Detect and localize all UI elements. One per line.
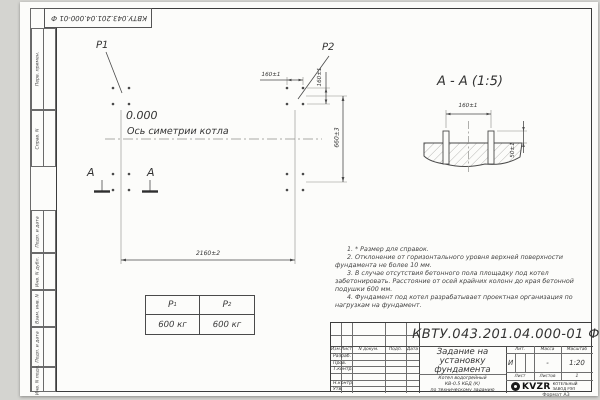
p2-subscript: 2 bbox=[228, 302, 232, 308]
load-table-header-p1: P1 bbox=[146, 296, 200, 315]
col-header-izm: Изм. bbox=[331, 346, 341, 353]
anchor-bolt-right bbox=[488, 131, 494, 164]
sig-row-tkontr: Т.контр. bbox=[331, 366, 352, 373]
p2-leader bbox=[298, 56, 329, 99]
section-letter-left: А bbox=[87, 166, 95, 179]
p2-label: P2 bbox=[322, 42, 334, 53]
company-logo: KVZR КОТЕЛЬНЫЙ ЗАВОД РЭП bbox=[511, 382, 578, 392]
load-table-value-p2: 600 кг bbox=[200, 315, 254, 334]
scale-value: 1:20 bbox=[561, 353, 593, 372]
product-line-3: по техническому заданию bbox=[419, 387, 506, 393]
dim-width-label: 2160±2 bbox=[183, 250, 233, 257]
elevation-label: 0.000 bbox=[126, 109, 158, 122]
col-header-ndokum: N докум. bbox=[352, 346, 385, 353]
concrete-block bbox=[424, 143, 522, 167]
symmetry-axis-label: Ось симетрии котла bbox=[127, 126, 229, 137]
p1-label: P1 bbox=[96, 40, 108, 51]
lit-value: И bbox=[506, 353, 515, 372]
sheets-label: Листов bbox=[534, 372, 561, 380]
dim-height-label: 660±3 bbox=[334, 122, 341, 154]
section-dim-protrusion-label: 50±1 bbox=[510, 134, 516, 166]
note-2: 2. Отклонение от горизонтального уровня … bbox=[335, 254, 580, 270]
title-block-line bbox=[331, 373, 419, 374]
scale-label: Масштаб bbox=[561, 346, 593, 353]
col-header-list: Лист bbox=[341, 346, 352, 353]
dim-bolt-horizontal-label: 160±1 bbox=[255, 72, 287, 78]
col-header-data: Дата bbox=[406, 346, 419, 353]
sig-row-utv: Утв. bbox=[331, 386, 352, 393]
doc-title-line-3: фундамента bbox=[419, 365, 506, 374]
note-4: 4. Фундамент под котел разрабатывает про… bbox=[335, 294, 580, 310]
dim-bolt-vertical-label: 160±1 bbox=[317, 61, 323, 93]
drawing-sheet: Перв. примен. Справ. N Подп. и дата Инв.… bbox=[0, 0, 600, 400]
section-cut-marks bbox=[94, 180, 158, 192]
load-table: P1 P2 600 кг 600 кг bbox=[145, 295, 255, 335]
logo-text: KVZR bbox=[522, 382, 551, 392]
lit-label: Лит. bbox=[506, 346, 534, 353]
title-block-line bbox=[525, 353, 526, 372]
note-1: 1. * Размер для справок. bbox=[335, 246, 580, 254]
title-block-line bbox=[406, 323, 407, 393]
note-3: 3. В случае отсутствия бетонного пола пл… bbox=[335, 270, 580, 294]
mass-value: - bbox=[534, 353, 561, 372]
p1-leader bbox=[106, 52, 122, 93]
title-block-line bbox=[515, 353, 516, 372]
title-block: КВТУ.043.201.04.000-01 Ф Изм. Лист N док… bbox=[330, 322, 592, 392]
title-block-line bbox=[331, 335, 419, 336]
mass-label: Масса bbox=[534, 346, 561, 353]
notes-block: 1. * Размер для справок. 2. Отклонение о… bbox=[335, 246, 580, 310]
title-block-line bbox=[385, 323, 386, 393]
p1-subscript: 1 bbox=[173, 302, 177, 308]
col-header-podp: Подп. bbox=[385, 346, 406, 353]
sheets-value: 1 bbox=[561, 372, 593, 380]
logo-sub-line2: ЗАВОД РЭП bbox=[553, 386, 576, 391]
sig-row-razrab: Разраб. bbox=[331, 353, 352, 360]
anchor-bolt-left bbox=[443, 131, 449, 164]
sheet-label: Лист bbox=[506, 372, 534, 380]
sig-row-nkontr: Н.контр. bbox=[331, 380, 352, 387]
section-title: А - А (1:5) bbox=[415, 74, 525, 89]
load-table-header-p2: P2 bbox=[200, 296, 254, 315]
title-block-designation: КВТУ.043.201.04.000-01 Ф bbox=[421, 324, 591, 345]
section-dim-spacing-label: 160±1 bbox=[448, 103, 488, 109]
gear-icon bbox=[511, 382, 520, 391]
load-table-value-p1: 600 кг bbox=[146, 315, 200, 334]
title-block-line bbox=[506, 380, 593, 381]
sig-row-prov: Пров. bbox=[331, 360, 352, 367]
logo-subtitle: КОТЕЛЬНЫЙ ЗАВОД РЭП bbox=[553, 382, 578, 391]
section-letter-right: А bbox=[147, 166, 155, 179]
format-label: Формат А3 bbox=[520, 393, 592, 398]
